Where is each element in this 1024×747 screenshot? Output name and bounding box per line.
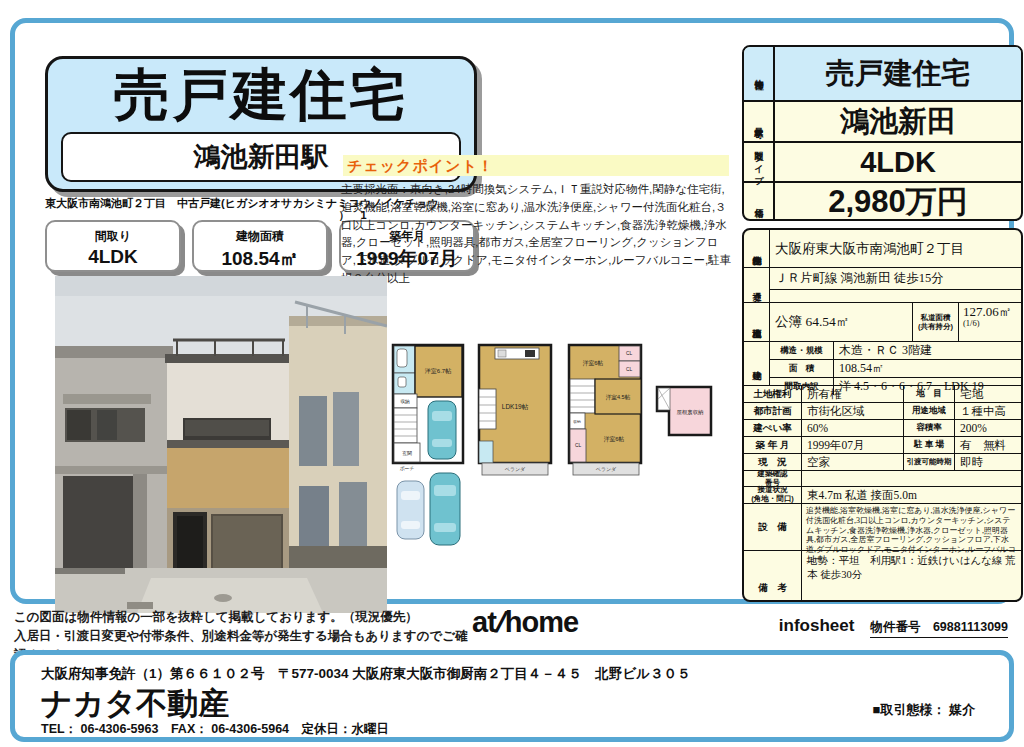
svg-text:ベランダ: ベランダ <box>505 466 526 472</box>
location-value: 大阪府東大阪市南鴻池町２丁目 <box>770 230 969 267</box>
private-road-label: 私道面積 (共有持分) <box>912 303 959 341</box>
license-line: 大阪府知事免許（1）第６６１０２号 〒577-0034 大阪府東大阪市御厨南２丁… <box>41 665 690 683</box>
property-type-title: 売戸建住宅 <box>48 59 474 131</box>
layout-value: 4LDK <box>47 246 179 268</box>
company-box: 大阪府知事免許（1）第６６１０２号 〒577-0034 大阪府東大阪市御厨南２丁… <box>10 650 1014 742</box>
detail-row-access: 交通 ＪＲ片町線 鴻池新田 徒歩15分 <box>744 267 1021 302</box>
building-area-box: 建物面積 108.54㎡ <box>192 220 328 272</box>
main-frame: 売戸建住宅 鴻池新田駅 東大阪市南鴻池町２丁目 中古戸建(ヒガシオオサカシミナミ… <box>10 18 1014 604</box>
access-label: 交通 <box>744 268 770 302</box>
land-area-label: 土地面積 <box>744 303 770 341</box>
detail-row-status-handover: 現 況 空家 引渡可能時期 即時 <box>744 453 1021 470</box>
summary-row-price: 価格 2,980万円 <box>744 181 1021 221</box>
building-area-label: 建物面積 <box>194 228 326 245</box>
summary-row-price-value: 2,980万円 <box>775 183 1021 221</box>
svg-text:CL: CL <box>626 367 632 372</box>
confirmation-label: 建築確認番号 <box>744 471 802 486</box>
summary-row-type: 物件種目 売戸建住宅 <box>744 47 1021 100</box>
svg-text:ベランダ: ベランダ <box>596 466 617 472</box>
detail-row-location: 物件所在地 大阪府東大阪市南鴻池町２丁目 <box>744 230 1021 267</box>
access-value: ＪＲ片町線 鴻池新田 徒歩15分 <box>770 268 1021 289</box>
svg-text:収納: 収納 <box>573 419 581 424</box>
private-road-value: 127.06㎡ (1/6) <box>959 303 1021 341</box>
detail-row-city-planning: 都市計画 市街化区域 用途地域 １種中高 <box>744 402 1021 419</box>
company-contact: TEL： 06-4306-5963 FAX： 06-4306-5964 定休日：… <box>41 721 389 738</box>
infosheet-page: 売戸建住宅 鴻池新田駅 東大阪市南鴻池町２丁目 中古戸建(ヒガシオオサカシミナミ… <box>0 0 1024 747</box>
detail-row-remarks: 備 考 地勢：平坦 利用駅1：近鉄けいはんな線 荒本 徒歩30分 <box>744 550 1021 602</box>
detail-row-coverage-ratio: 建ぺい率 60% 容積率 200% <box>744 419 1021 436</box>
checkpoint-heading: チェックポイント！ <box>343 155 729 176</box>
road-label: 接道状況(角地・間口) <box>744 487 802 503</box>
floorplan-2f: LDK19帖 ベランダ <box>479 345 551 475</box>
building-area-row: 面 積 108.54㎡ <box>770 359 1021 377</box>
detail-row-road: 接道状況(角地・間口) 東4.7m 私道 接面5.0m <box>744 486 1021 503</box>
svg-text:収納: 収納 <box>400 399 410 404</box>
detail-row-land-area: 土地面積 公簿 64.54㎡ 私道面積 (共有持分) 127.06㎡ (1/6) <box>744 302 1021 341</box>
svg-text:洋室6.7帖: 洋室6.7帖 <box>425 367 451 375</box>
svg-text:屋根裏収納: 屋根裏収納 <box>677 409 704 416</box>
floorplan-3f: CL CL 洋室6帖 洋室4.5帖 収納 CL 洋室6帖 ベランダ <box>569 345 641 475</box>
detail-row-built-parking: 築 年 月 1999年07月 駐 車 場 有 無料 <box>744 436 1021 453</box>
layout-box: 間取り 4LDK <box>45 220 181 272</box>
svg-text:洋室6帖: 洋室6帖 <box>583 360 604 367</box>
summary-row-type-label: 物件種目 <box>744 47 775 100</box>
road-value: 東4.7m 私道 接面5.0m <box>802 487 922 503</box>
equipment-label: 設 備 <box>744 504 802 550</box>
athome-logo: at/home <box>472 606 578 639</box>
infosheet-label-group: infosheet 物件番号 69881113099 <box>779 616 1008 638</box>
remarks-label: 備 考 <box>744 551 802 602</box>
svg-text:洋室4.5帖: 洋室4.5帖 <box>606 394 631 401</box>
layout-label: 間取り <box>47 228 179 245</box>
detail-row-building: 建物 構造・規模 木造・ＲＣ 3階建 面 積 108.54㎡ 間取内訳 洋 4.… <box>744 341 1021 385</box>
svg-text:CL: CL <box>575 443 581 448</box>
property-summary-table: 物件種目 売戸建住宅 最寄駅 鴻池新田 間取タイプ 4LDK 価格 2,980万… <box>742 45 1023 221</box>
svg-text:玄関: 玄関 <box>402 450 412 456</box>
summary-row-type-value: 売戸建住宅 <box>775 47 1021 100</box>
transaction-type: ■取引態様： 媒介 <box>873 701 975 719</box>
floorplan-diagram: 洋室6.7帖 収納 玄関 ポーチ <box>387 339 727 579</box>
checkpoint-body: 主要採光面：東向き,24時間換気システム,ＩＴ重説対応物件,閑静な住宅街,追焚機… <box>341 181 733 288</box>
equipment-value: 追焚機能,浴室乾燥機,浴室に窓あり,温水洗浄便座,シャワー付洗面化粧台,3口以上… <box>802 504 1021 550</box>
building-area-value: 108.54㎡ <box>194 246 326 272</box>
building-label: 建物 <box>744 342 770 385</box>
summary-row-layout: 間取タイプ 4LDK <box>744 141 1021 181</box>
summary-row-layout-label: 間取タイプ <box>744 143 775 181</box>
svg-text:洋室6帖: 洋室6帖 <box>604 436 625 443</box>
access-value-line2 <box>770 289 1021 302</box>
floorplan-attic: 屋根裏収納 <box>657 387 711 435</box>
detail-row-confirmation-no: 建築確認番号 <box>744 470 1021 486</box>
detail-row-equipment: 設 備 追焚機能,浴室乾燥機,浴室に窓あり,温水洗浄便座,シャワー付洗面化粧台,… <box>744 503 1021 550</box>
summary-row-station-label: 最寄駅 <box>744 102 775 141</box>
summary-row-station-value: 鴻池新田 <box>775 102 1021 141</box>
detail-row-land-rights: 土地権利 所有権 地 目 宅地 <box>744 385 1021 402</box>
location-label: 物件所在地 <box>744 230 770 267</box>
land-area-value: 公簿 64.54㎡ <box>770 303 912 341</box>
company-name: ナカタ不動産 <box>41 683 229 725</box>
floorplan-1f: 洋室6.7帖 収納 玄関 ポーチ <box>393 345 463 545</box>
summary-row-station: 最寄駅 鴻池新田 <box>744 100 1021 141</box>
svg-text:ポーチ: ポーチ <box>399 465 414 471</box>
disclaimer-line1: この図面は物件情報の一部を抜粋して掲載しております。（現況優先） <box>14 608 474 627</box>
property-detail-table: 物件所在地 大阪府東大阪市南鴻池町２丁目 交通 ＪＲ片町線 鴻池新田 徒歩15分… <box>742 228 1023 602</box>
summary-row-layout-value: 4LDK <box>775 143 1021 181</box>
remarks-value: 地勢：平坦 利用駅1：近鉄けいはんな線 荒本 徒歩30分 <box>802 551 1021 602</box>
confirmation-value <box>802 471 812 486</box>
svg-text:CL: CL <box>626 351 632 356</box>
property-number: 物件番号 69881113099 <box>870 619 1008 638</box>
building-structure-row: 構造・規模 木造・ＲＣ 3階建 <box>770 342 1021 359</box>
summary-row-price-label: 価格 <box>744 183 775 221</box>
property-photo <box>55 276 387 613</box>
infosheet-label: infosheet <box>779 616 855 636</box>
svg-text:LDK19帖: LDK19帖 <box>502 403 529 411</box>
